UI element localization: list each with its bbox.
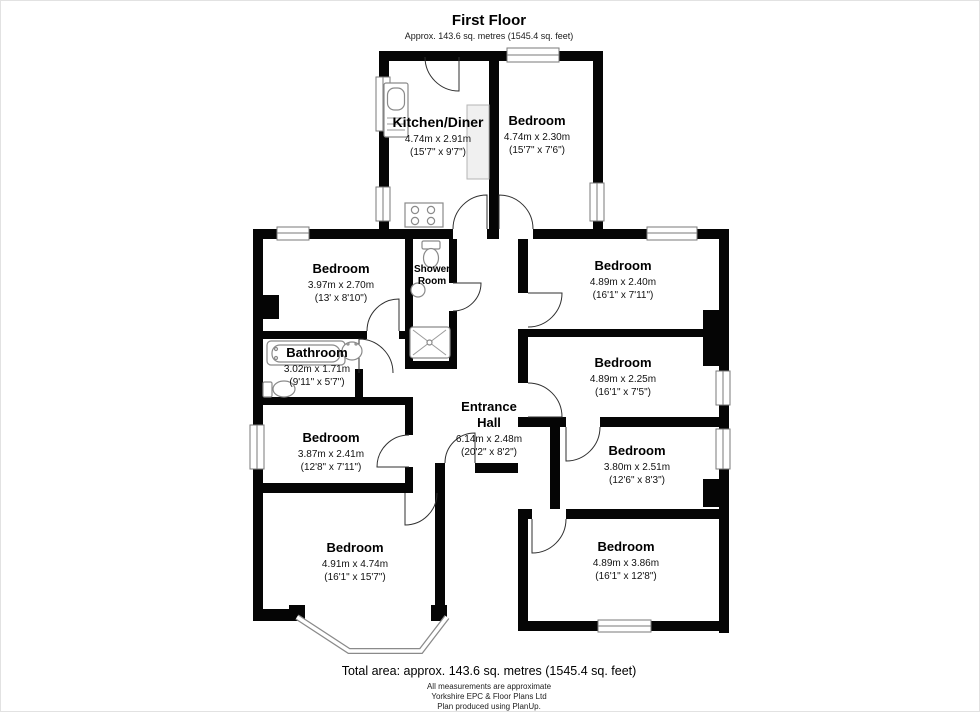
wall xyxy=(600,417,719,427)
wall xyxy=(405,405,413,435)
room-dims-metric: 3.02m x 1.71m xyxy=(284,364,350,375)
window xyxy=(250,425,264,469)
door-arc xyxy=(359,339,393,373)
room-name: Bedroom xyxy=(597,539,654,554)
company-text: Yorkshire EPC & Floor Plans Ltd xyxy=(431,692,546,701)
shower-tray-fixture xyxy=(410,327,450,358)
room-dims-metric: 4.91m x 4.74m xyxy=(322,559,388,570)
wall xyxy=(518,509,528,621)
wall xyxy=(518,621,598,631)
room-name: Room xyxy=(418,276,446,287)
wall xyxy=(518,417,566,427)
window xyxy=(716,429,730,469)
wall xyxy=(435,463,445,619)
room-dims-metric: 4.89m x 3.86m xyxy=(593,558,659,569)
wall xyxy=(518,239,528,293)
room-name: Bedroom xyxy=(326,540,383,555)
room-name: Entrance xyxy=(461,399,517,414)
room-name: Bathroom xyxy=(286,345,347,360)
room-name: Bedroom xyxy=(302,430,359,445)
wall xyxy=(449,239,457,283)
room-area-bedroom-bottom-right xyxy=(528,519,719,621)
room-label-bedroom-bottom-left: Bedroom 4.91m x 4.74m (16'1" x 15'7") xyxy=(322,540,388,583)
room-dims-metric: 3.80m x 2.51m xyxy=(604,462,670,473)
room-area-entrance-hall xyxy=(445,239,518,621)
room-label-shower-room: Shower Room xyxy=(414,264,450,287)
room-name: Bedroom xyxy=(594,355,651,370)
total-area-text: Total area: approx. 143.6 sq. metres (15… xyxy=(342,664,637,678)
wall xyxy=(703,479,719,507)
room-dims-metric: 6.14m x 2.48m xyxy=(456,434,522,445)
wall xyxy=(253,331,367,339)
room-dims-imperial: (15'7" x 9'7") xyxy=(410,147,466,158)
room-label-bedroom-middle-right: Bedroom 4.89m x 2.25m (16'1" x 7'5") xyxy=(590,355,656,398)
room-dims-metric: 4.89m x 2.40m xyxy=(590,277,656,288)
floorplan-drawing: First Floor Approx. 143.6 sq. metres (15… xyxy=(1,1,980,713)
room-dims-metric: 3.97m x 2.70m xyxy=(308,280,374,291)
room-label-bedroom-middle-left: Bedroom 3.87m x 2.41m (12'8" x 7'11") xyxy=(298,430,364,473)
room-name: Shower xyxy=(414,264,450,275)
wall xyxy=(518,337,528,383)
wall xyxy=(533,229,729,239)
room-name: Bedroom xyxy=(312,261,369,276)
room-name: Bedroom xyxy=(508,113,565,128)
room-label-bathroom: Bathroom 3.02m x 1.71m (9'11" x 5'7") xyxy=(284,345,350,388)
room-label-bedroom-lower-right: Bedroom 3.80m x 2.51m (12'6" x 8'3") xyxy=(604,443,670,486)
page-title: First Floor xyxy=(452,12,526,29)
wall xyxy=(703,310,719,366)
wall xyxy=(489,61,499,229)
room-label-bedroom-upper-right: Bedroom 4.89m x 2.40m (16'1" x 7'11") xyxy=(590,258,656,301)
wall xyxy=(253,483,405,493)
room-dims-metric: 3.87m x 2.41m xyxy=(298,449,364,460)
wall xyxy=(518,329,719,337)
software-credit-text: Plan produced using PlanUp. xyxy=(437,702,541,711)
room-label-bedroom-bottom-right: Bedroom 4.89m x 3.86m (16'1" x 12'8") xyxy=(593,539,659,582)
wall xyxy=(550,427,560,509)
room-dims-imperial: (20'2" x 8'2") xyxy=(461,447,517,458)
room-dims-metric: 4.74m x 2.91m xyxy=(405,134,471,145)
wall xyxy=(566,509,729,519)
room-dims-imperial: (16'1" x 12'8") xyxy=(595,571,657,582)
window xyxy=(647,227,697,240)
window xyxy=(598,620,651,632)
hob-fixture xyxy=(405,203,443,227)
window xyxy=(376,187,390,221)
floorplan-page: First Floor Approx. 143.6 sq. metres (15… xyxy=(0,0,980,712)
wall xyxy=(405,467,413,493)
window xyxy=(716,371,730,405)
room-label-bedroom-upper-left: Bedroom 3.97m x 2.70m (13' x 8'10") xyxy=(308,261,374,304)
window xyxy=(507,48,559,62)
room-dims-imperial: (16'1" x 7'5") xyxy=(595,387,651,398)
bay-window xyxy=(297,617,447,651)
room-label-bedroom-top: Bedroom 4.74m x 2.30m (15'7" x 7'6") xyxy=(504,113,570,156)
window xyxy=(590,183,604,221)
window xyxy=(277,227,309,240)
wall xyxy=(475,463,518,473)
wall xyxy=(518,509,532,519)
room-name: Bedroom xyxy=(594,258,651,273)
room-dims-imperial: (15'7" x 7'6") xyxy=(509,145,565,156)
disclaimer-text: All measurements are approximate xyxy=(427,682,552,691)
room-dims-imperial: (13' x 8'10") xyxy=(315,293,367,304)
room-dims-imperial: (16'1" x 15'7") xyxy=(324,572,386,583)
room-dims-imperial: (16'1" x 7'11") xyxy=(593,290,654,301)
chimney-breast xyxy=(263,295,279,319)
room-dims-metric: 4.74m x 2.30m xyxy=(504,132,570,143)
wall xyxy=(405,361,457,369)
wall xyxy=(253,397,413,405)
wall xyxy=(487,229,499,239)
room-dims-imperial: (12'6" x 8'3") xyxy=(609,475,665,486)
page-subtitle: Approx. 143.6 sq. metres (1545.4 sq. fee… xyxy=(405,31,574,41)
room-dims-imperial: (12'8" x 7'11") xyxy=(301,462,362,473)
wall xyxy=(379,51,603,61)
room-name: Kitchen/Diner xyxy=(392,114,484,130)
room-name: Hall xyxy=(477,415,501,430)
room-dims-metric: 4.89m x 2.25m xyxy=(590,374,656,385)
room-name: Bedroom xyxy=(608,443,665,458)
wall xyxy=(651,621,729,631)
room-dims-imperial: (9'11" x 5'7") xyxy=(289,377,344,388)
